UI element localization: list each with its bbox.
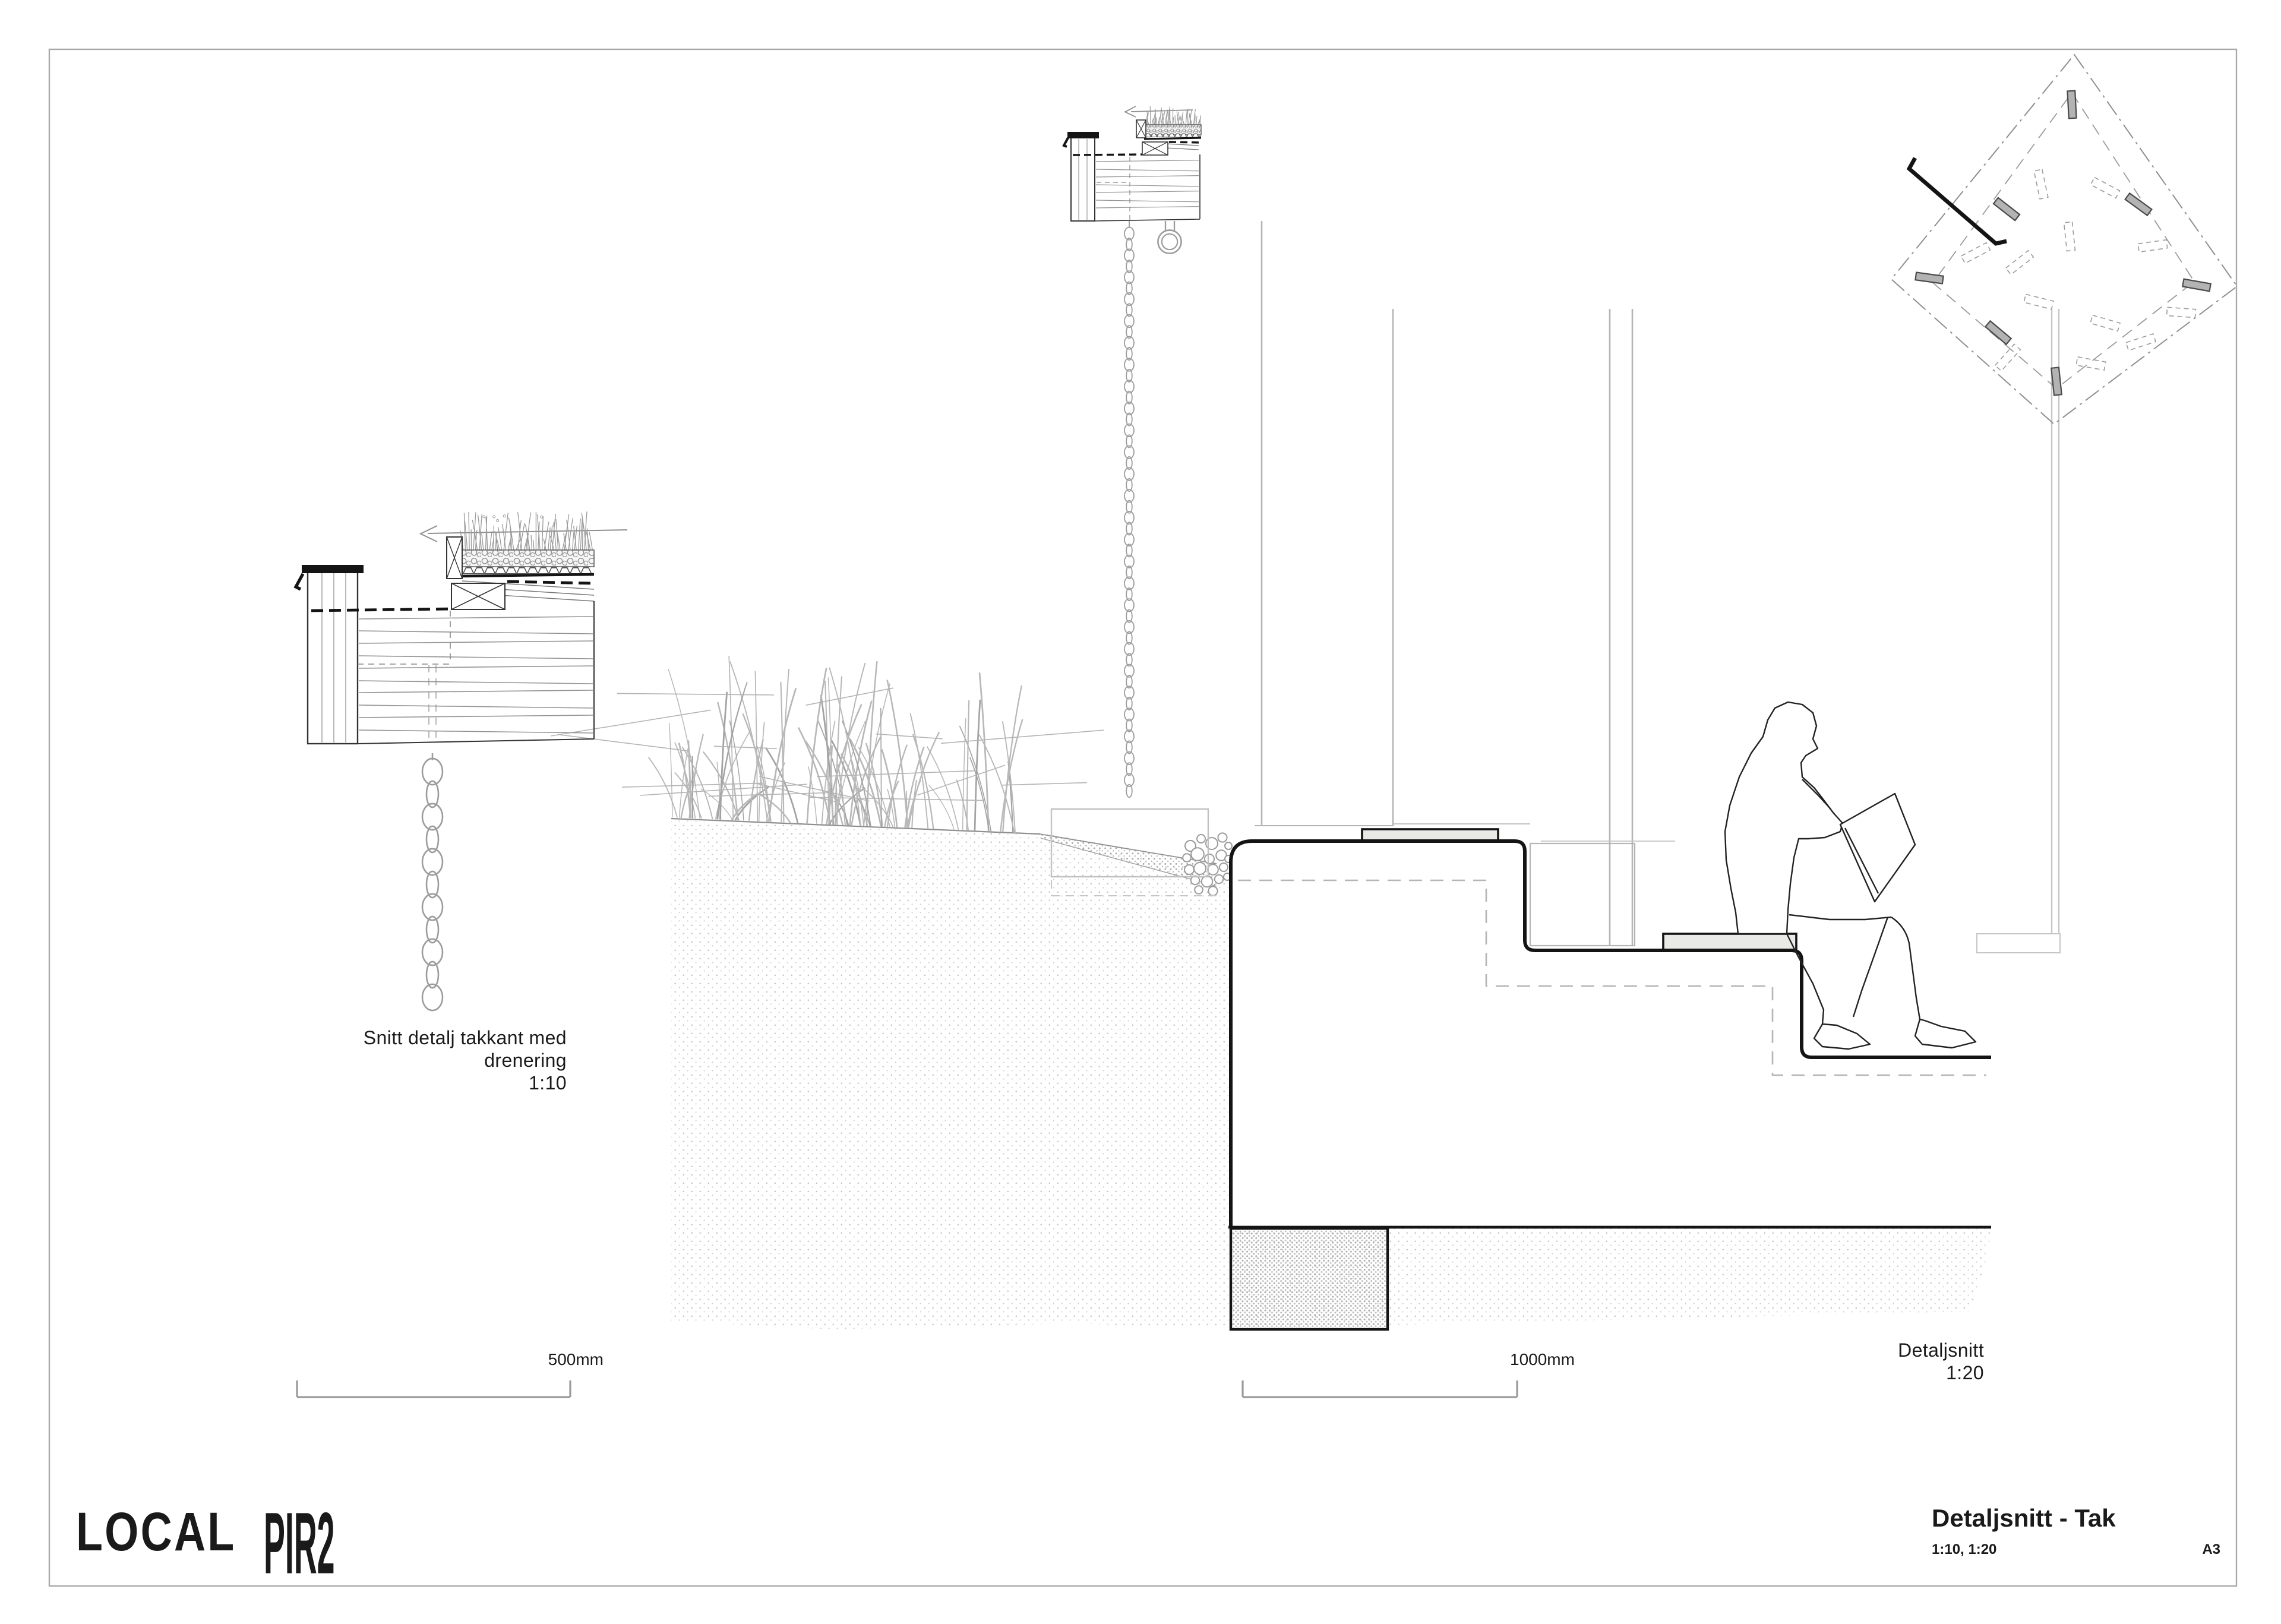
detail-120-label: Detaljsnitt 1:20 xyxy=(1735,1341,1984,1386)
drawing-sheet: Snitt detalj takkant med drenering 1:10 … xyxy=(0,0,2281,1624)
scale-bar-1000mm xyxy=(1243,1380,1517,1397)
site-plan-diamond xyxy=(1891,55,2237,424)
title-block-scales: 1:10, 1:20 xyxy=(1932,1541,1996,1557)
scale-bar-500mm xyxy=(297,1380,570,1397)
detail-110-label-line2: drenering xyxy=(303,1051,567,1074)
glass-wall-right xyxy=(1977,309,2060,953)
roof-edge-detail-110 xyxy=(296,511,627,1010)
glass-wall-middle xyxy=(1530,309,1675,946)
title-block-title: Detaljsnitt - Tak xyxy=(1932,1505,2116,1535)
roof-edge-detail-120 xyxy=(1064,106,1201,797)
green-roof-grass-120 xyxy=(1145,106,1200,125)
drainage-chain-120 xyxy=(1124,221,1134,797)
title-block-sheet-size: A3 xyxy=(2132,1541,2220,1557)
drainage-chain-110 xyxy=(422,753,443,1010)
logo-local: LOCAL xyxy=(76,1499,236,1564)
drainage-mat-110 xyxy=(462,568,594,574)
vegetation-sketch xyxy=(551,656,1104,833)
footing xyxy=(1231,1228,1388,1329)
detail-110-label: Snitt detalj takkant med drenering 1:10 xyxy=(303,1029,567,1096)
detail-120-label-line1: Detaljsnitt xyxy=(1735,1341,1984,1364)
newspaper xyxy=(1840,794,1915,902)
roof-buildup-110 xyxy=(359,617,593,733)
scale-bar-1000mm-label: 1000mm xyxy=(1510,1350,1575,1369)
seat-pad xyxy=(1663,934,1796,950)
detail-110-label-scale: 1:10 xyxy=(303,1074,567,1097)
detail-120-label-scale: 1:20 xyxy=(1735,1364,1984,1386)
chain-ring xyxy=(1158,221,1181,254)
seated-figure xyxy=(1725,702,1976,1049)
logo-pir2: PIR2 xyxy=(264,1492,335,1595)
roof-buildup-120 xyxy=(1096,160,1199,208)
section-cut-marker xyxy=(1909,158,2007,244)
membrane-dashed-line xyxy=(1238,880,1986,1075)
glass-wall-left xyxy=(1255,221,1530,826)
detail-110-label-line1: Snitt detalj takkant med xyxy=(303,1029,567,1051)
scale-bar-500mm-label: 500mm xyxy=(451,1350,604,1369)
